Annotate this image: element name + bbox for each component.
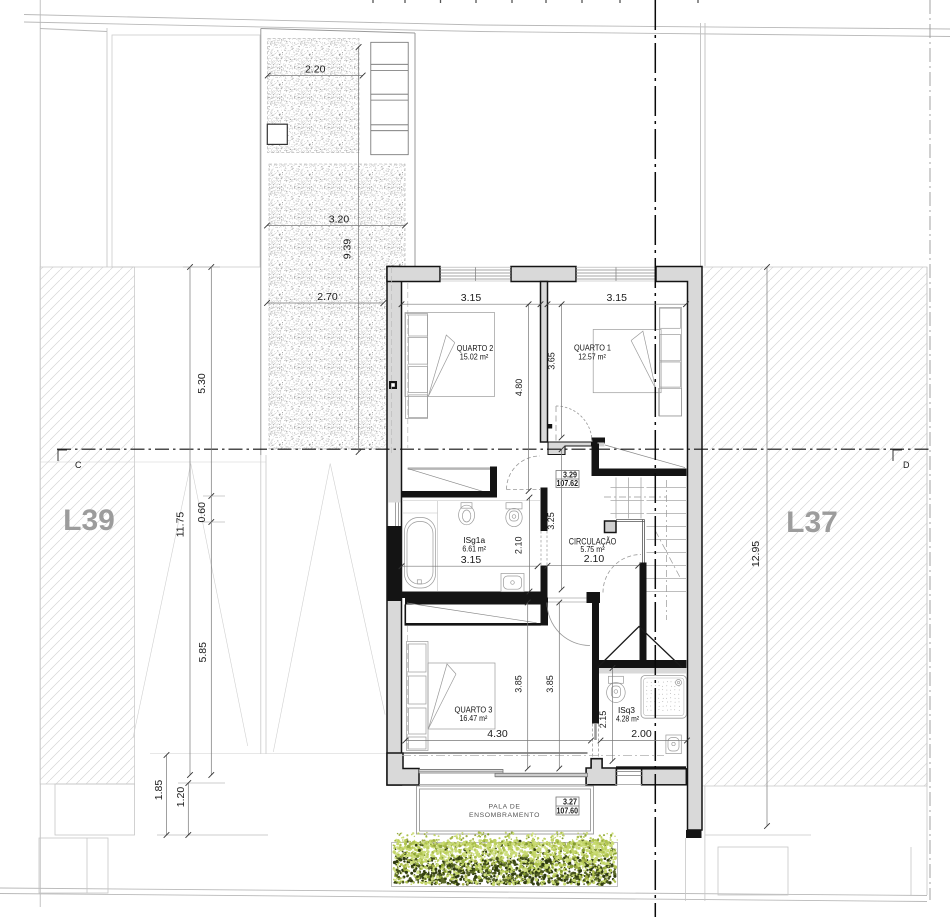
svg-text:5.85: 5.85 — [197, 642, 209, 663]
svg-text:12.95: 12.95 — [750, 541, 762, 567]
svg-text:3.15: 3.15 — [461, 554, 482, 566]
svg-text:3.20: 3.20 — [329, 214, 350, 226]
svg-text:3.85: 3.85 — [545, 675, 555, 693]
svg-text:C: C — [75, 460, 82, 470]
svg-text:107.62: 107.62 — [557, 479, 579, 488]
svg-text:D: D — [903, 460, 910, 470]
svg-text:3.15: 3.15 — [461, 292, 482, 304]
svg-text:12.57 m²: 12.57 m² — [578, 353, 606, 362]
svg-text:QUARTO 2: QUARTO 2 — [457, 343, 494, 353]
svg-text:QUARTO 3: QUARTO 3 — [455, 705, 493, 715]
svg-text:3.15: 3.15 — [607, 292, 628, 304]
svg-text:2.00: 2.00 — [631, 728, 652, 740]
svg-text:6.61 m²: 6.61 m² — [462, 545, 486, 554]
svg-text:1.85: 1.85 — [153, 780, 165, 801]
svg-text:1.20: 1.20 — [175, 787, 187, 808]
svg-text:L39: L39 — [63, 504, 115, 537]
svg-text:3.85: 3.85 — [514, 675, 524, 693]
svg-text:2.15: 2.15 — [598, 711, 608, 729]
svg-text:2.10: 2.10 — [584, 553, 605, 565]
svg-text:107.60: 107.60 — [557, 807, 579, 816]
svg-text:5.30: 5.30 — [196, 373, 208, 394]
svg-text:QUARTO 1: QUARTO 1 — [574, 343, 611, 353]
svg-text:4.30: 4.30 — [487, 728, 508, 740]
svg-text:11.75: 11.75 — [175, 512, 187, 538]
svg-text:9.39: 9.39 — [342, 239, 354, 260]
svg-text:5.75 m²: 5.75 m² — [580, 545, 605, 554]
svg-text:L37: L37 — [786, 506, 838, 539]
svg-text:15.02 m²: 15.02 m² — [460, 353, 489, 362]
svg-text:2.20: 2.20 — [305, 64, 326, 76]
svg-text:3.25: 3.25 — [546, 512, 556, 530]
svg-text:0.60: 0.60 — [196, 502, 208, 523]
svg-text:3.27: 3.27 — [563, 798, 577, 807]
svg-text:16.47 m²: 16.47 m² — [460, 714, 488, 723]
svg-text:2.70: 2.70 — [317, 291, 338, 303]
svg-text:3.65: 3.65 — [547, 352, 557, 370]
svg-text:4.80: 4.80 — [514, 379, 524, 397]
svg-text:ENSOMBRAMENTO: ENSOMBRAMENTO — [469, 812, 540, 819]
svg-text:PALA DE: PALA DE — [488, 804, 520, 811]
svg-text:2.10: 2.10 — [514, 537, 524, 555]
svg-text:4.28 m²: 4.28 m² — [616, 715, 639, 724]
